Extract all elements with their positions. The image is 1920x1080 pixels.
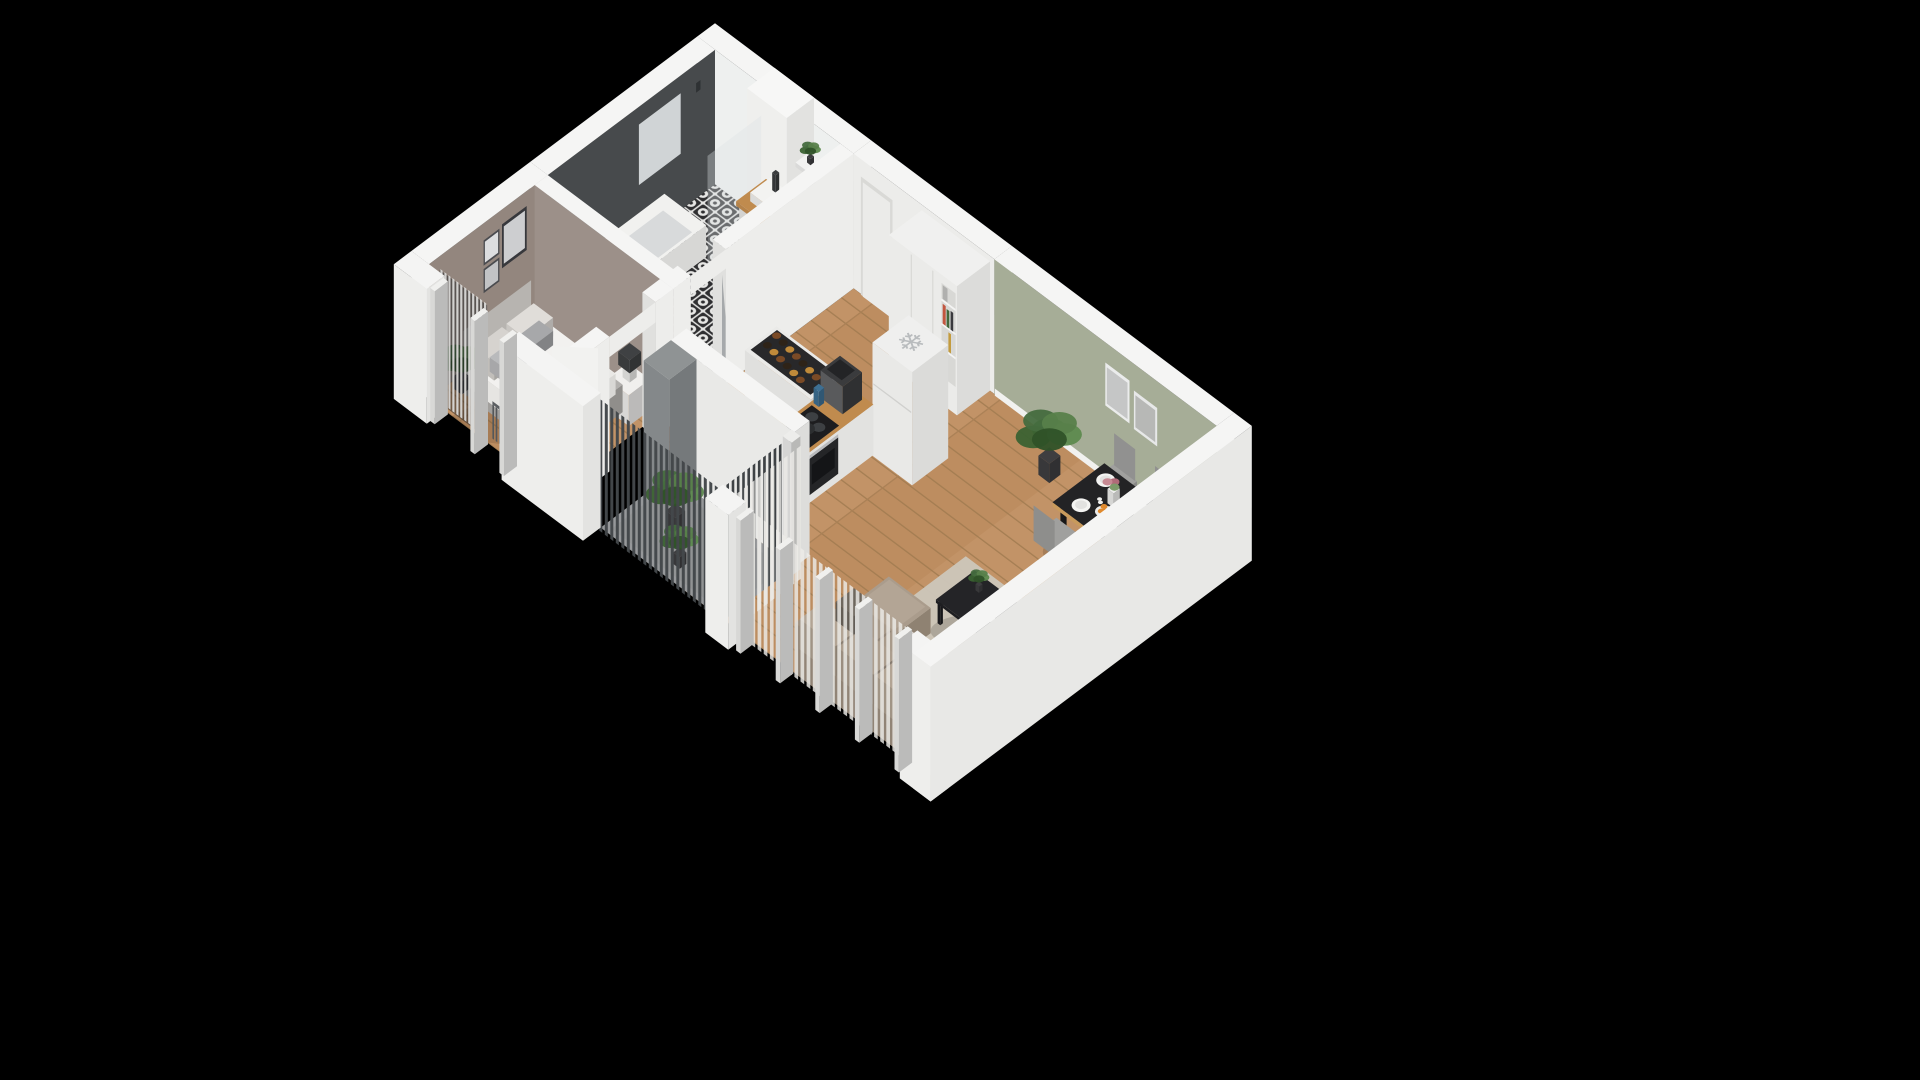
living-sheer-curtains-slat xyxy=(850,585,854,721)
bedroom-curtains-slat xyxy=(456,281,458,416)
window-post-living-3-face-front xyxy=(815,577,819,713)
window-post-living-2-face-right xyxy=(780,540,793,683)
living-sheer-curtains-slat xyxy=(801,548,805,685)
oranges-dot xyxy=(1100,504,1107,509)
window-post-living-2-face-front xyxy=(776,547,780,683)
living-sheer-curtains-slat xyxy=(764,520,768,656)
balcony-slat-fence-slat xyxy=(610,407,613,541)
entry-door xyxy=(863,182,890,317)
balcony-slat-fence-slat xyxy=(660,444,663,578)
balcony-slat-fence-slat xyxy=(654,440,657,574)
balcony-slat-fence-slat xyxy=(616,411,619,545)
window-post-living-5-face-front xyxy=(895,636,899,772)
living-sheer-curtains-slat xyxy=(880,608,884,744)
wine-bottles-row1-dot xyxy=(785,346,794,352)
wall-front-left-end-face-front xyxy=(394,264,427,424)
balcony-slat-fence-slat xyxy=(693,469,696,603)
salt-pepper-dot xyxy=(1098,501,1103,505)
wine-bottles-row1-dot xyxy=(812,374,821,380)
balcony-slat-fence-slat xyxy=(676,456,679,590)
living-sheer-curtains-slat xyxy=(837,575,841,711)
bedroom-curtains-slat xyxy=(448,275,450,410)
scene-layers: ❄ xyxy=(394,23,1252,801)
balcony-slat-fence-slat xyxy=(682,460,685,594)
balcony-plant-large-foliage xyxy=(660,487,691,507)
living-sheer-curtains-slat xyxy=(843,580,847,716)
bedroom-radiator-slat xyxy=(492,404,494,439)
living-sheer-curtains-slat xyxy=(758,516,762,652)
living-sheer-curtains-slat xyxy=(807,552,811,689)
wine-bottles-row1-dot xyxy=(779,339,788,345)
book-green xyxy=(947,309,950,329)
book-red xyxy=(943,304,946,326)
wine-bottles-row1-dot xyxy=(805,367,814,373)
vanity-faucet-face-right xyxy=(776,173,780,193)
balcony-slat-fence-slat xyxy=(627,419,630,553)
wine-bottles-row1-dot xyxy=(792,353,801,359)
window-post-living-1-face-right xyxy=(741,511,754,654)
window-post-living-4-face-front xyxy=(855,606,859,742)
living-sheer-curtains-slat xyxy=(886,612,890,748)
bedroom-curtains-slat xyxy=(464,287,466,422)
balcony-slat-fence-slat xyxy=(649,436,652,570)
window-post-bedroom-2-face-right xyxy=(475,311,488,454)
balcony-slat-fence-slat xyxy=(632,423,635,557)
wine-bottles-row2-dot xyxy=(769,349,778,355)
wardrobe-face-right xyxy=(957,261,990,415)
salt-pepper-dot xyxy=(1097,497,1102,501)
living-sheer-curtains-slat xyxy=(874,603,878,739)
window-post-living-1-face-front xyxy=(736,517,740,653)
isometric-floorplan-render: ❄ xyxy=(0,0,1920,1080)
wine-bottles-row1-dot xyxy=(799,360,808,366)
bedroom-curtains-slat xyxy=(468,290,470,425)
bedroom-radiator-slat xyxy=(496,407,498,442)
window-post-living-4-face-right xyxy=(859,600,872,743)
living-sheer-curtains-slat xyxy=(770,525,774,661)
balcony-slat-fence-slat xyxy=(665,448,668,582)
wine-bottles-row2-dot xyxy=(796,377,805,383)
wine-bottles-row2-dot xyxy=(789,370,798,376)
dinner-plates-inner-dot xyxy=(1075,500,1087,509)
vase-flowers-dot xyxy=(1110,484,1120,491)
window-post-living-3-face-right xyxy=(820,570,833,713)
window-post-bedroom-1-face-right xyxy=(435,281,448,424)
balcony-slat-fence-slat xyxy=(671,452,674,586)
floorplan-stage: ❄ xyxy=(0,0,1920,1080)
wine-bottles-row2-dot xyxy=(783,363,792,369)
bedroom-curtains-slat xyxy=(452,278,454,413)
coffee-table-plant-foliage xyxy=(973,575,984,582)
wall-front-bedroom-kitchen-face-right xyxy=(583,393,601,541)
vase-flowers-dot xyxy=(1102,478,1112,485)
wall-right-perimeter-face-front xyxy=(913,654,931,802)
balcony-slat-fence-slat xyxy=(643,432,646,566)
balcony-slat-fence-slat xyxy=(638,427,641,561)
balcony-slat-fence-slat xyxy=(605,403,608,537)
wall-front-balcony-living-face-front xyxy=(705,498,728,650)
living-sheer-curtains-slat xyxy=(794,543,798,679)
balcony-slat-fence-slat xyxy=(687,465,690,599)
wine-bottles-row2-dot xyxy=(763,342,772,348)
wine-bottles-row1-dot xyxy=(772,332,781,338)
window-post-bedroom-3-face-front xyxy=(499,340,503,476)
window-post-bedroom-1-face-front xyxy=(430,288,434,424)
vanity-faucet-face-front xyxy=(772,173,776,193)
window-post-living-5-face-right xyxy=(899,630,912,773)
coffee-table-leg-3-face-front xyxy=(938,604,941,626)
bathroom-shelf-plant-foliage xyxy=(805,148,816,155)
book-black xyxy=(951,311,954,332)
window-post-bedroom-3-face-right xyxy=(504,333,517,476)
bedroom-curtains-slat xyxy=(460,284,462,419)
window-post-bedroom-2-face-front xyxy=(470,318,474,454)
balcony-slat-fence-slat xyxy=(621,415,624,549)
balcony-slat-fence-slat xyxy=(698,473,701,607)
living-room-palm-foliage xyxy=(1032,428,1067,451)
book-yellow xyxy=(948,332,951,353)
wine-bottles-row2-dot xyxy=(776,356,785,362)
